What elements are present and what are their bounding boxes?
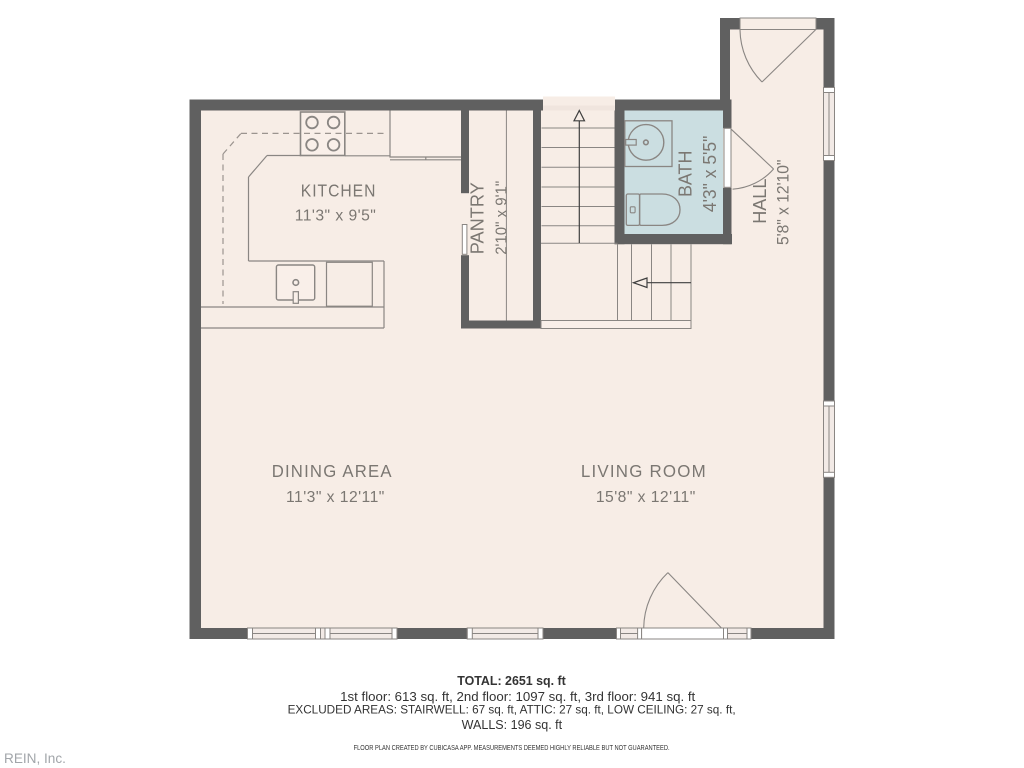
svg-text:11'3" x 9'5": 11'3" x 9'5" xyxy=(295,208,377,225)
svg-text:FLOOR PLAN CREATED BY CUBICASA: FLOOR PLAN CREATED BY CUBICASA APP. MEAS… xyxy=(354,743,670,752)
svg-text:TOTAL: 2651 sq. ft: TOTAL: 2651 sq. ft xyxy=(457,674,566,688)
svg-text:5'8" x 12'10": 5'8" x 12'10" xyxy=(775,159,793,245)
svg-text:WALLS: 196 sq. ft: WALLS: 196 sq. ft xyxy=(462,718,563,732)
svg-text:2'10" x 9'1": 2'10" x 9'1" xyxy=(494,181,511,255)
svg-text:KITCHEN: KITCHEN xyxy=(301,181,377,201)
svg-text:15'8" x 12'11": 15'8" x 12'11" xyxy=(596,489,696,506)
svg-text:1st floor: 613 sq. ft, 2nd flo: 1st floor: 613 sq. ft, 2nd floor: 1097 s… xyxy=(340,689,695,704)
svg-text:LIVING ROOM: LIVING ROOM xyxy=(581,461,707,481)
svg-text:BATH: BATH xyxy=(674,151,695,198)
svg-text:REIN, Inc.: REIN, Inc. xyxy=(4,751,66,766)
svg-text:DINING AREA: DINING AREA xyxy=(272,461,393,481)
svg-text:PANTRY: PANTRY xyxy=(467,182,487,254)
svg-text:EXCLUDED AREAS: STAIRWELL: 67: EXCLUDED AREAS: STAIRWELL: 67 sq. ft, AT… xyxy=(288,703,736,717)
svg-text:HALL: HALL xyxy=(749,179,770,224)
svg-text:4'3" x 5'5": 4'3" x 5'5" xyxy=(700,136,720,213)
svg-text:11'3" x 12'11": 11'3" x 12'11" xyxy=(286,489,385,506)
